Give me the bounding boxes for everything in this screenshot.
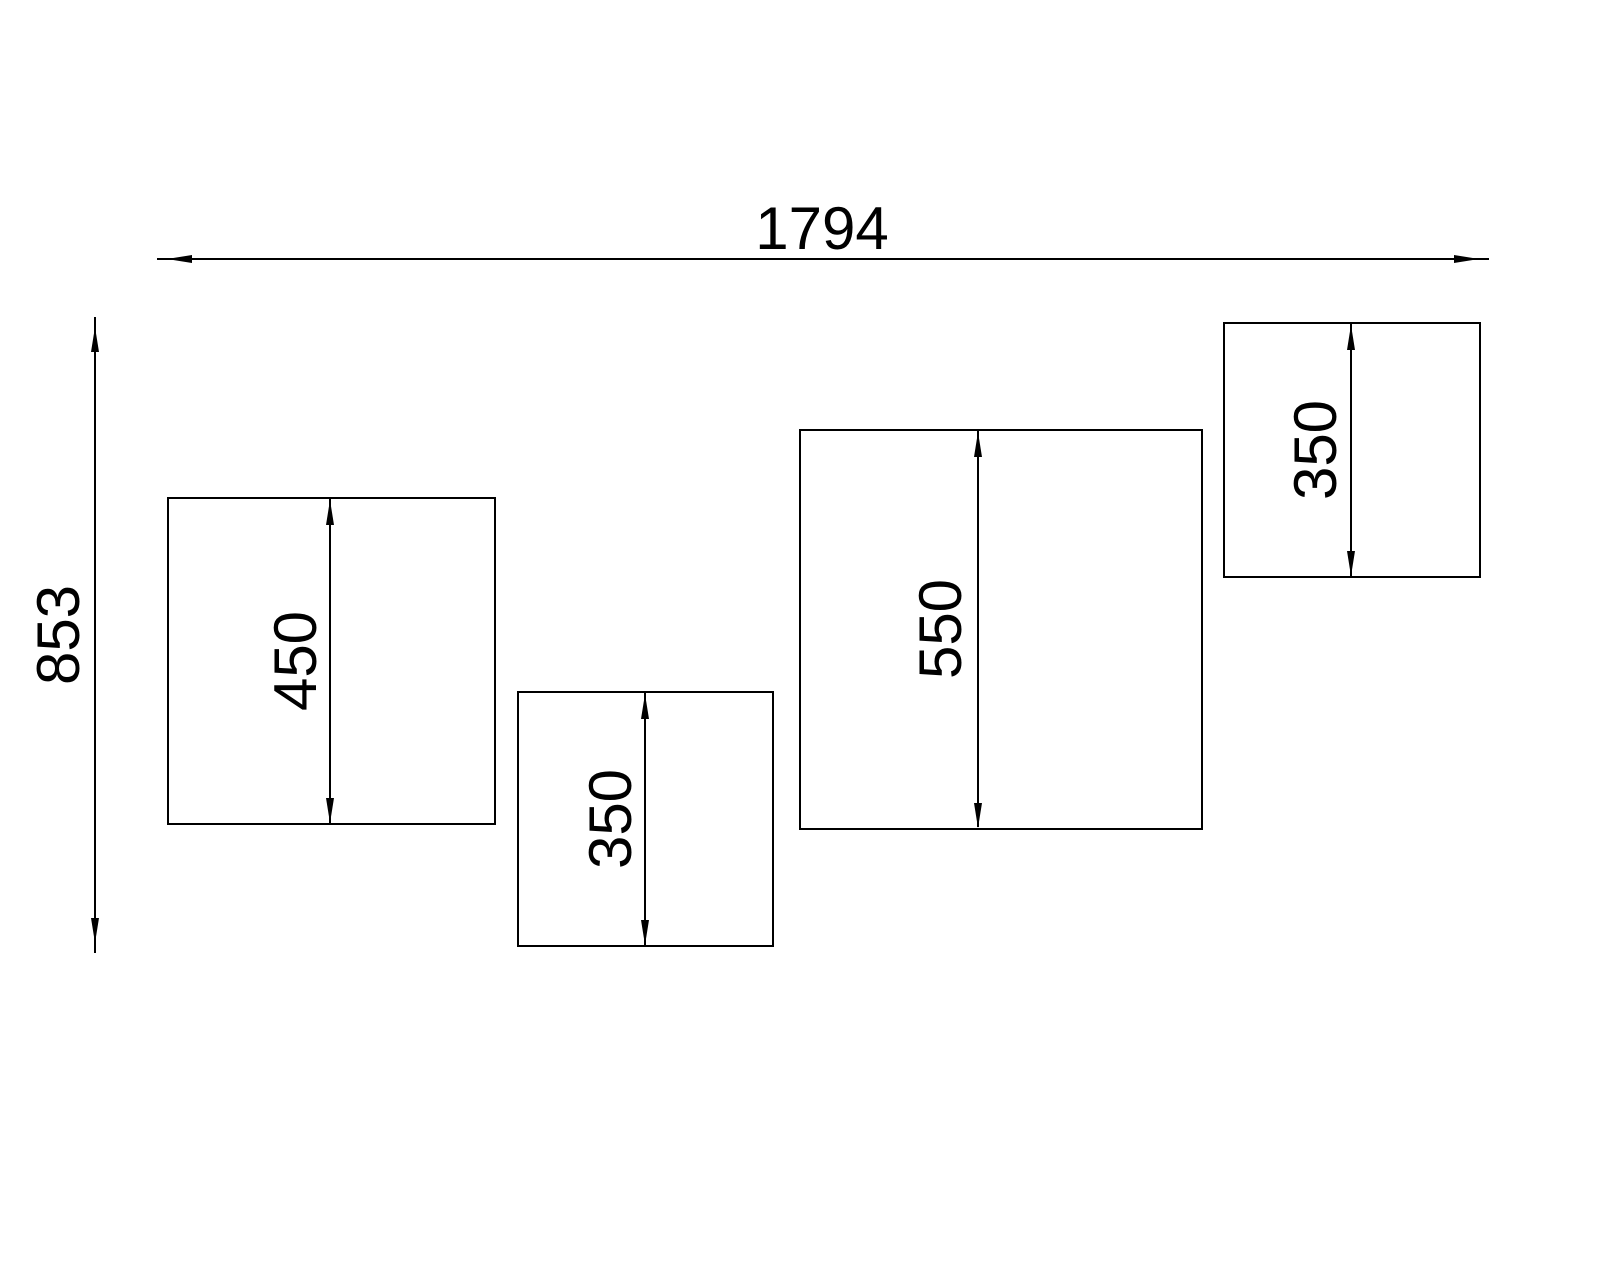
arrow-right-icon bbox=[1454, 255, 1479, 263]
panel-height-label: 350 bbox=[581, 769, 641, 869]
arrow-down-icon bbox=[1347, 551, 1355, 576]
drawing-canvas: 1794 853 450 350 550 350 bbox=[0, 0, 1600, 1280]
arrow-up-icon bbox=[1347, 325, 1355, 350]
overall-height-label: 853 bbox=[29, 585, 89, 685]
dimension-line bbox=[644, 693, 646, 945]
overall-width-label: 1794 bbox=[755, 199, 888, 259]
arrow-down-icon bbox=[91, 918, 99, 943]
arrow-up-icon bbox=[974, 432, 982, 457]
panel-outline bbox=[799, 429, 1203, 830]
arrow-up-icon bbox=[326, 500, 334, 525]
arrow-down-icon bbox=[974, 803, 982, 828]
dimension-line bbox=[1350, 324, 1352, 576]
panel-height-label: 450 bbox=[266, 611, 326, 711]
arrow-left-icon bbox=[167, 255, 192, 263]
panel-height-label: 550 bbox=[911, 579, 971, 679]
arrow-down-icon bbox=[641, 920, 649, 945]
arrow-up-icon bbox=[91, 327, 99, 352]
arrow-down-icon bbox=[326, 798, 334, 823]
dimension-line bbox=[94, 317, 96, 953]
panel-outline bbox=[167, 497, 496, 825]
panel-height-label: 350 bbox=[1286, 400, 1346, 500]
panel-outline bbox=[1223, 322, 1481, 578]
dimension-line bbox=[977, 431, 979, 827]
arrow-up-icon bbox=[641, 694, 649, 719]
dimension-line bbox=[329, 499, 331, 823]
